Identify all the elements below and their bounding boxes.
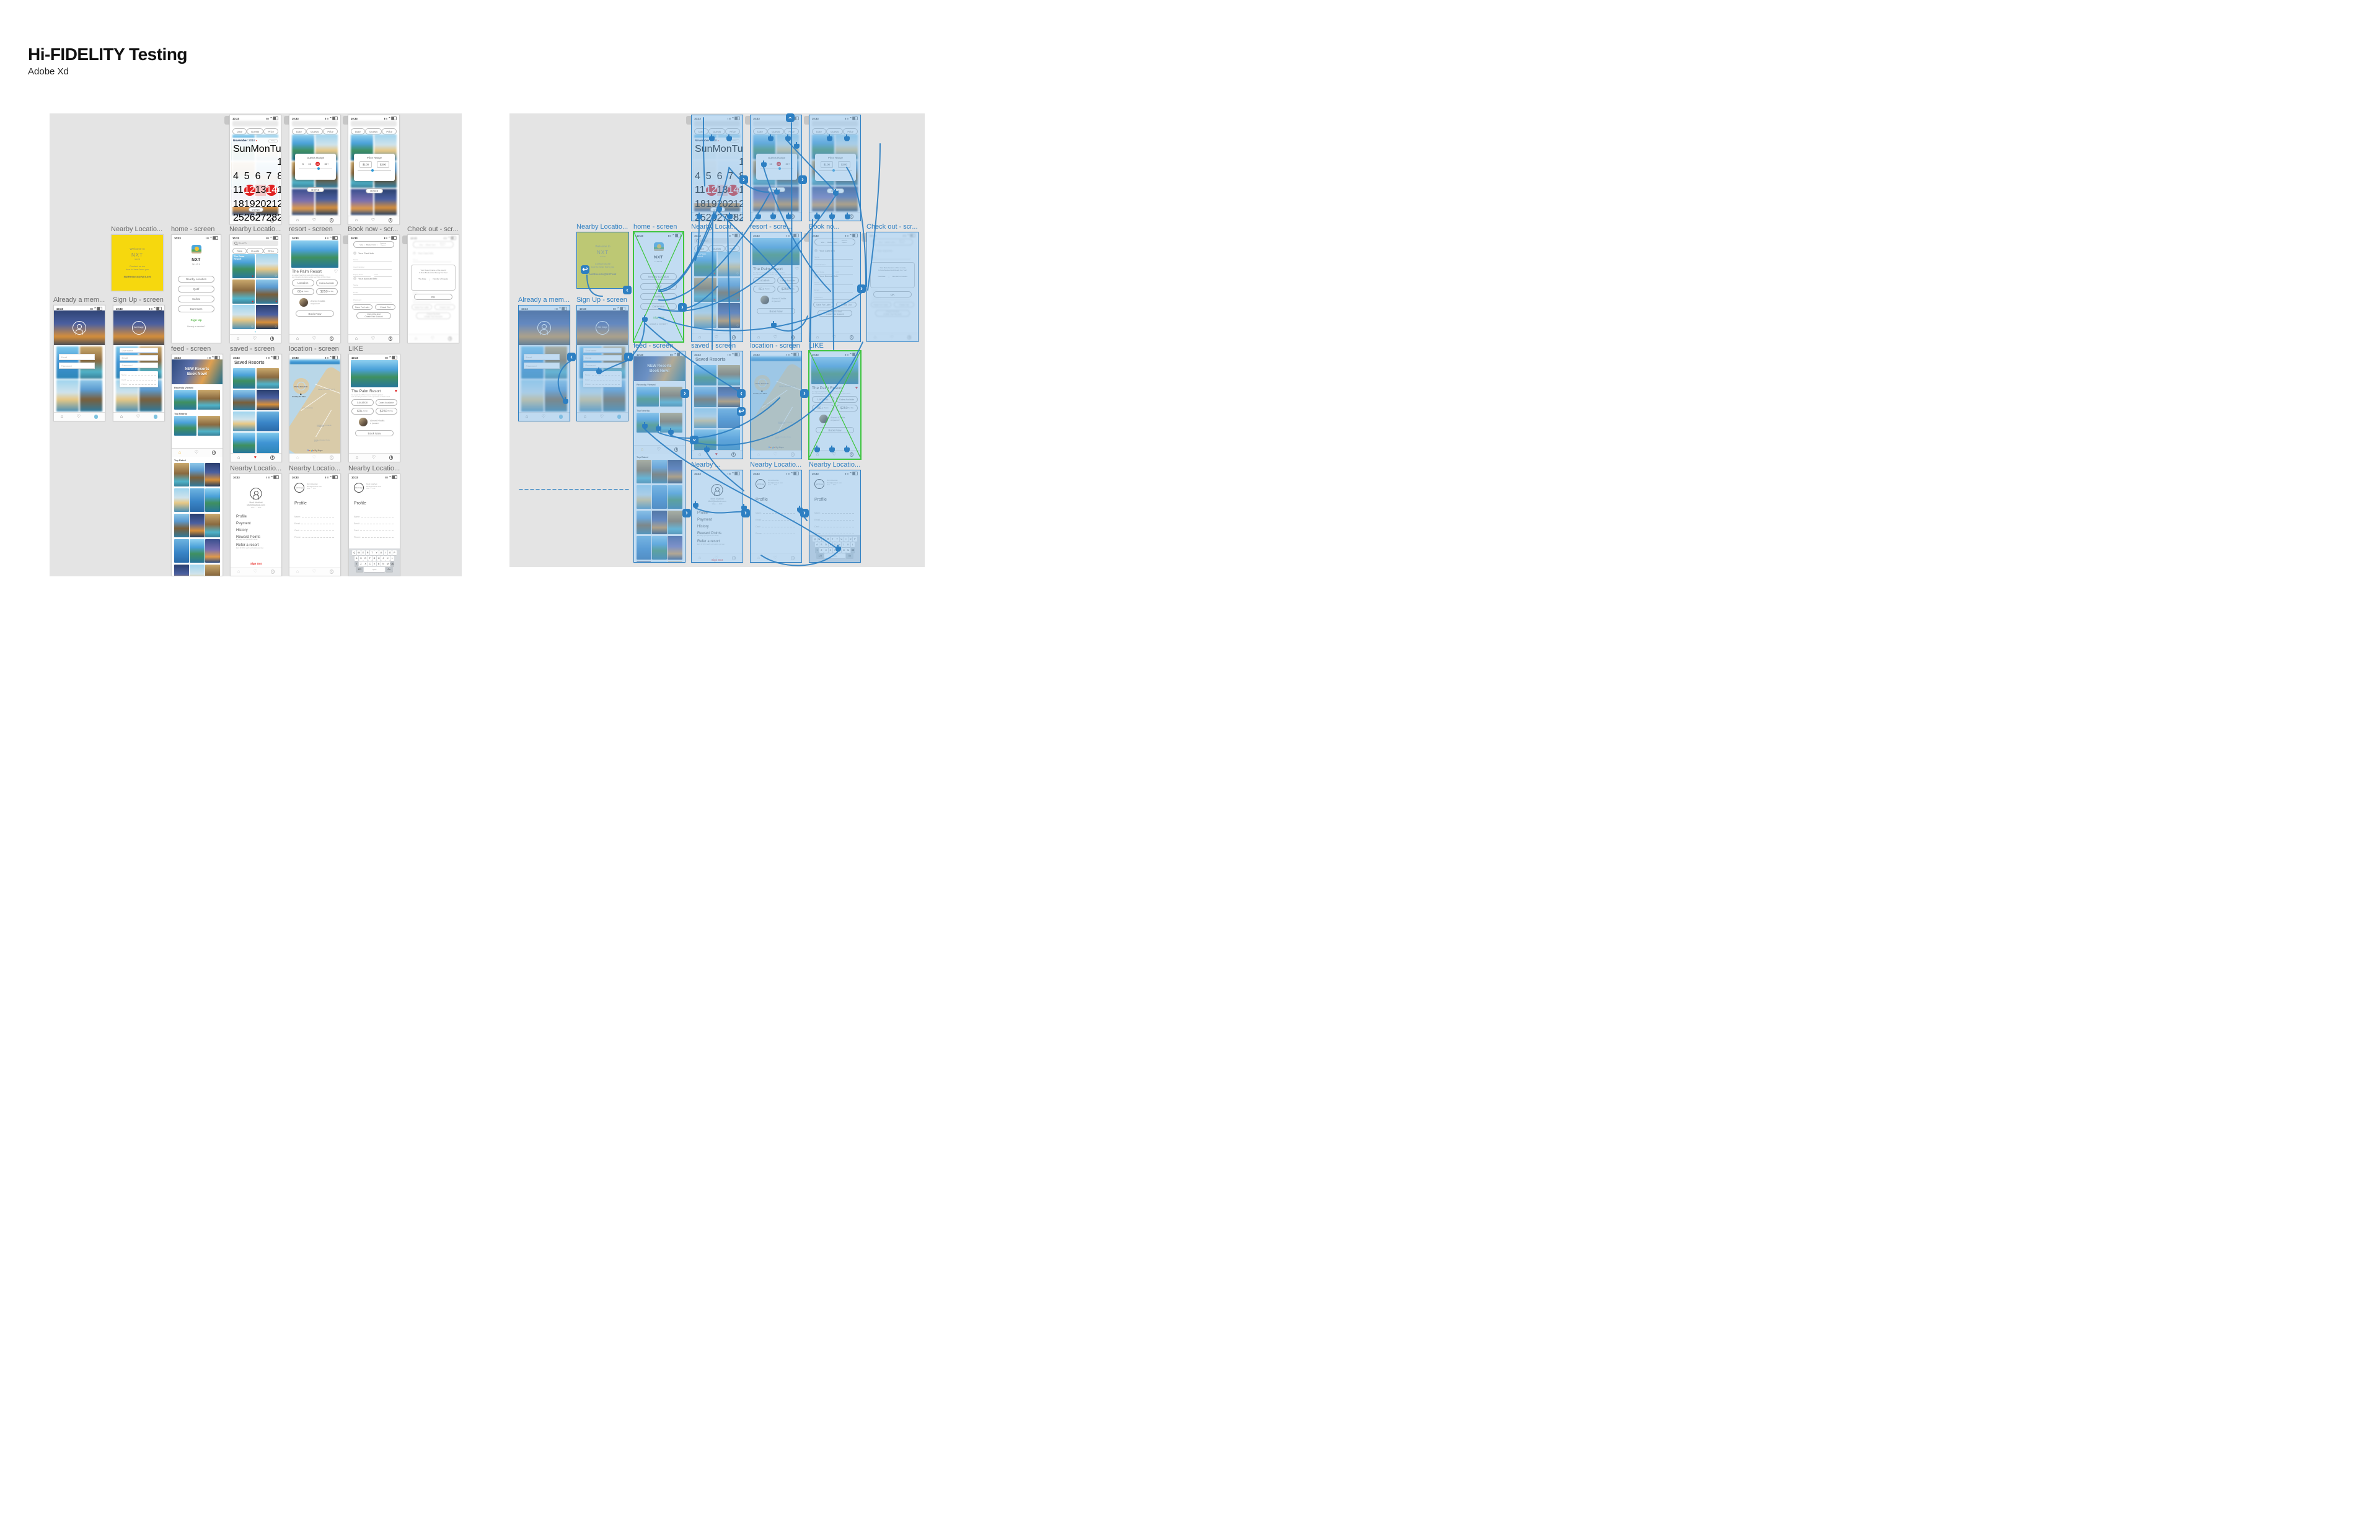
card-type-selector[interactable]: Visa|Master Card|American Express [872,239,913,245]
artboard-profile[interactable]: 10:33Add ImageMurti AlsaihatiMurti@outlo… [750,470,802,563]
artboard-profile_keyboard[interactable]: 10:33Add ImageMurti AlsaihatiMurti@outlo… [348,473,400,576]
field-name[interactable]: Name [814,281,853,285]
calendar-day[interactable]: 1 [739,157,743,168]
location-chip[interactable]: Location [753,277,775,284]
calendar-day[interactable]: 21 [728,199,739,210]
key-C[interactable]: C [829,548,832,553]
field-name[interactable]: Name [353,258,392,262]
explore-icon[interactable] [907,335,912,340]
artboard-filter_guests[interactable]: 10:33DateGuestsPriceGuests Range5153030+… [289,115,341,225]
calendar-day[interactable]: 1 [277,157,281,168]
card-type-master-card[interactable]: Master Card [426,244,436,246]
home-icon[interactable]: ⌂ [237,337,239,341]
chip-guests[interactable]: Guests [767,128,784,134]
home-icon[interactable]: ⌂ [296,570,299,574]
calendar-day[interactable]: 4 [233,171,244,182]
home-icon[interactable]: ⌂ [178,451,181,455]
city-button-nearby-location[interactable]: Nearby Location [640,273,677,280]
artboard-label[interactable]: Already a mem... [53,296,105,304]
explore-icon[interactable] [330,455,334,460]
connector-plug[interactable] [829,447,835,452]
calendar-day[interactable]: 15 [739,185,743,196]
connector-plug[interactable] [814,214,820,219]
heart-icon[interactable]: ♡ [136,415,140,419]
heart-filled-icon[interactable]: ♥ [855,386,858,390]
calendar-day[interactable]: 4 [695,171,706,182]
explore-icon[interactable] [389,337,393,341]
ok-button[interactable]: OK [414,294,452,300]
connector-plug[interactable] [693,503,699,508]
explore-icon[interactable] [791,452,795,457]
home-icon[interactable]: ⌂ [120,415,123,419]
card-type-master-card[interactable]: Master Card [885,241,895,244]
connector-chevron-icon[interactable]: › [800,389,809,398]
artboard-checkout[interactable]: 10:33Visa|Master Card|American Express1Y… [407,234,459,343]
guests-chip[interactable]: 60+Person [812,405,834,411]
field-email[interactable]: Email [814,289,853,293]
check-out-button[interactable]: Check Out [836,302,857,307]
artboard-signin[interactable]: 10:33EmailPassword⌂♡ [53,305,105,421]
question-link[interactable]: ✉ Question? [772,301,786,302]
heart-icon[interactable]: ♡ [773,335,777,340]
map-area[interactable]: Palm Jumeirah◆One&Only The PalmsDUBAI IN… [289,364,340,454]
slider-handle[interactable] [371,169,374,172]
connector-plug[interactable] [844,447,850,452]
today-button[interactable]: ‹ Today › [268,139,278,143]
calendar-day[interactable]: 11 [233,185,244,196]
card-type-master-card[interactable]: Master Card [366,244,376,246]
calendar-day[interactable]: 12 [706,185,717,196]
artboard-map[interactable]: 10:33Palm Jumeirah◆One&Only The PalmsDUB… [750,351,802,459]
home-icon[interactable]: ⌂ [699,556,701,560]
key-T[interactable]: T [370,550,374,555]
book-now-button[interactable]: Book Now [355,430,394,436]
question-link[interactable]: ✉ Question? [831,420,845,421]
city-button-saihat[interactable]: Saihat [640,293,677,300]
city-button-saihat[interactable]: Saihat [178,296,214,302]
home-icon[interactable]: ⌂ [415,337,417,341]
heart-icon[interactable]: ♡ [773,556,777,560]
key-F[interactable]: F [368,556,372,561]
artboard-signup[interactable]: 10:33Add ImageUsernameEmailPasswordName:… [576,305,628,421]
field-password[interactable]: Password [583,363,622,368]
home-icon[interactable]: ⌂ [237,455,240,460]
home-icon[interactable]: ⌂ [757,556,760,560]
calendar-day[interactable]: 6 [717,171,728,182]
field-email[interactable]: Email [524,354,560,360]
menu-item-history[interactable]: History [236,529,278,532]
connector-chevron-icon[interactable]: › [739,175,748,184]
book-now-button[interactable]: Book Now [816,427,854,433]
question-link[interactable]: ✉ Question? [311,303,325,305]
connector-plug[interactable] [596,369,602,374]
calendar-day[interactable]: 27 [717,213,728,221]
explore-icon[interactable] [330,337,334,341]
check-out-button[interactable]: Check Out [375,304,395,310]
artboard-label[interactable]: Sign Up - screen [576,296,627,304]
price-min[interactable]: $100 [359,161,372,168]
artboard-label[interactable]: LIKE [348,345,363,353]
calendar-day[interactable]: 11 [695,185,706,196]
artboard-label[interactable]: Nearby Locatio... [809,461,860,469]
artboard-welcome[interactable]: Welcome toNXTresortsContact us we love t… [576,232,629,289]
key-L[interactable]: L [851,542,855,547]
artboard-label[interactable]: Nearby Locat... [691,223,738,231]
signup-link[interactable]: Sign Up [634,317,683,320]
artboard-home[interactable]: 10:33NXTresortsNearby LocationQatifSaiha… [633,232,684,342]
calendar-day[interactable]: 8 [277,171,281,182]
heart-icon[interactable]: ♥ [715,452,718,457]
chip-guests[interactable]: Guests [708,128,725,134]
heart-icon[interactable]: ♡ [542,415,545,419]
connector-chevron-icon[interactable]: › [737,389,746,398]
search-bar[interactable] [812,121,858,126]
key-⇧[interactable]: ⇧ [815,548,819,553]
key-⌫[interactable]: ⌫ [390,561,394,566]
key-R[interactable]: R [826,537,830,542]
explore-icon[interactable] [791,335,795,340]
card-type-american-express[interactable]: American Express [898,240,907,244]
artboard-label[interactable]: Check out - scr... [407,226,459,233]
card-type-selector[interactable]: Visa|Master Card|American Express [353,241,394,248]
home-icon[interactable]: ⌂ [296,218,299,222]
field-name[interactable]: Name [814,256,853,260]
heart-filled-icon[interactable]: ♥ [713,299,715,302]
heart-icon[interactable]: ♡ [657,447,661,452]
field-card-number[interactable]: Card Number [814,263,853,267]
connector-plug[interactable] [741,506,747,511]
artboard-checkout[interactable]: 10:33Visa|Master Card|American Express1Y… [866,232,919,342]
search-bar[interactable] [694,121,740,126]
heart-icon[interactable]: ♡ [371,337,375,341]
field-username[interactable]: Username [120,348,158,353]
connector-chevron-icon[interactable]: › [624,353,633,361]
field-username[interactable]: Username [583,348,622,353]
key-⌫[interactable]: ⌫ [851,548,855,553]
guests-chip[interactable]: 60+Person [753,286,775,293]
connector-plug[interactable] [756,214,761,219]
field-email[interactable]: Email [583,355,622,361]
card-type-american-express[interactable]: American Express [379,243,388,246]
explore-icon[interactable] [791,214,795,219]
chip-guests[interactable]: Guests [306,128,323,134]
artboard-label[interactable]: Already a mem... [518,296,570,304]
chip-price[interactable]: Price [323,128,338,134]
key-X[interactable]: X [363,561,367,566]
connector-plug[interactable] [835,547,841,552]
calendar-day[interactable]: 21 [266,199,277,210]
keyboard[interactable]: QWERTYUIOPASDFGHJKL⇧ZXCVBNM⌫123spaceGo [349,548,400,576]
connector-chevron-icon[interactable]: ↩ [737,407,746,416]
chip-price[interactable]: Price [382,128,397,134]
artboard-saved[interactable]: 10:33Saved Resorts⌂♥ [230,354,282,462]
artboard-filter_calendar[interactable]: 10:33DateGuestsPriceNovember2018▸‹ Today… [691,115,743,221]
key-X[interactable]: X [824,548,827,553]
save-for-later-button[interactable]: Save For Later [352,304,372,310]
artboard-label[interactable]: resort - scre... [750,223,792,231]
home-icon[interactable]: ⌂ [757,335,760,340]
connector-chevron-icon[interactable]: › [682,509,691,517]
explore-icon[interactable] [731,452,736,457]
explore-icon[interactable] [389,455,394,460]
book-now-button[interactable]: Book Now [296,310,334,317]
heart-outline-icon[interactable]: ♡ [275,275,277,278]
key-R[interactable]: R [366,550,369,555]
chip-price[interactable]: Price [784,128,799,134]
home-icon[interactable]: ⌂ [355,337,358,341]
slider-handle[interactable] [778,167,781,170]
heart-icon[interactable]: ♡ [195,451,198,455]
key-S[interactable]: S [359,556,363,561]
artboard-label[interactable]: feed - screen [171,345,211,353]
key-W[interactable]: W [357,550,361,555]
artboard-home[interactable]: 10:33NXTresortsNearby LocationQatifSaiha… [171,234,221,343]
artboard-resort_detail_liked[interactable]: 10:33The Palm Resort♥An elegant beachfro… [348,354,400,462]
calendar-day[interactable]: 14 [266,185,277,196]
calendar-day[interactable]: 22 [277,199,281,210]
heart-icon[interactable]: ♡ [431,337,434,341]
key-J[interactable]: J [842,542,845,547]
key-⇧[interactable]: ⇧ [355,561,358,566]
menu-item-payment[interactable]: Payment [236,522,278,526]
home-icon[interactable]: ⌂ [874,335,876,340]
artboard-resort_detail_liked[interactable]: 10:33The Palm Resort♥An elegant beachfro… [809,351,861,459]
book-now-button[interactable]: Book Now [757,308,795,314]
home-icon[interactable]: ⌂ [526,415,528,419]
heart-icon[interactable]: ♡ [312,455,316,460]
connector-plug[interactable] [774,190,780,195]
field-email[interactable]: Email [59,354,95,360]
field-name[interactable]: Name [353,284,392,288]
chip-date[interactable]: Date [812,128,826,134]
artboard-feed[interactable]: 10:33NEW Resorts Book Now!Recently Viewe… [171,354,223,576]
connector-plug[interactable] [829,214,835,219]
chip-date[interactable]: Date [694,128,708,134]
search-bar[interactable] [351,121,397,126]
artboard-filter_calendar[interactable]: 10:33DateGuestsPriceNovember2018▸‹ Today… [229,115,281,225]
explore-icon[interactable] [271,570,275,574]
connector-plug[interactable] [794,144,800,149]
connector-plug[interactable] [845,214,850,219]
artboard-resort_list[interactable]: 10:33SearchDateGuestsPriceThe Palm Resor… [691,232,743,342]
heart-outline-icon[interactable]: ♡ [334,270,338,274]
artboard-label[interactable]: Nearby Locatio... [111,226,162,233]
menu-item-profile[interactable]: Profile [697,511,739,515]
calendar-day[interactable]: 29 [277,213,281,224]
chip-price[interactable]: Price [263,128,278,134]
chip-price[interactable]: Price [725,245,740,252]
signup-link[interactable]: Sign Up [172,319,221,322]
price-chip[interactable]: $250Per Day [376,408,398,415]
search-bar[interactable] [232,121,278,126]
dates-chip[interactable]: Dates Available [836,396,858,403]
heart-outline-icon[interactable]: ♡ [275,326,277,329]
guests-chip[interactable]: 60+Person [351,408,374,415]
connector-plug[interactable] [771,323,777,328]
add-image-circle[interactable]: Add Image [132,321,146,335]
card-type-visa[interactable]: Visa [821,241,824,244]
key-W[interactable]: W [818,537,821,542]
connector-plug[interactable] [697,214,702,219]
connector-plug[interactable] [726,136,732,141]
connector-plug[interactable] [768,136,773,141]
explore-icon[interactable] [389,218,393,222]
explore-icon[interactable] [850,335,854,340]
key-N[interactable]: N [842,548,845,553]
key-F[interactable]: F [829,542,832,547]
chip-price[interactable]: Price [263,248,278,254]
connector-plug[interactable] [709,136,715,141]
artboard-label[interactable]: Nearby Locatio... [576,223,628,231]
connector-plug[interactable] [814,447,820,452]
add-image-circle[interactable]: Add Image [596,321,609,335]
connector-plug[interactable] [761,162,767,167]
connector-plug[interactable] [704,447,710,452]
home-icon[interactable]: ⌂ [757,452,760,457]
artboard-resort_detail[interactable]: 10:33The Palm Resort♡An elegant beachfro… [289,234,341,343]
artboard-profile[interactable]: 10:33Add ImageMurti AlsaihatiMurti@outlo… [289,473,341,576]
explore-icon[interactable] [330,570,334,574]
key-T[interactable]: T [831,537,834,542]
calendar-day[interactable]: 22 [739,199,743,210]
calendar-day[interactable]: 5 [244,171,255,182]
calendar-next-icon[interactable]: ▸ [256,139,257,142]
artboard-label[interactable]: saved - screen [691,342,736,350]
key-Q[interactable]: Q [352,550,356,555]
price-min[interactable]: $100 [821,161,833,168]
explore-icon[interactable] [212,451,216,455]
price-max[interactable]: $300 [838,161,850,168]
menu-item-history[interactable]: History [697,525,739,529]
dates-chip[interactable]: Dates Available [316,279,338,286]
key-A[interactable]: A [355,556,358,561]
connector-plug[interactable] [642,424,648,429]
field-password[interactable]: Password [353,299,392,302]
artboard-label[interactable]: LIKE [809,342,824,350]
city-button-qatif[interactable]: Qatif [640,283,677,290]
calendar-day[interactable]: 26 [244,213,255,224]
checkout-create-button[interactable]: Check Out And Create Your Account [818,310,852,317]
home-icon[interactable]: ⌂ [699,335,701,340]
connector-plug[interactable] [827,136,832,141]
artboard-map[interactable]: 10:33Palm Jumeirah◆One&Only The PalmsDUB… [289,354,341,462]
connector-chevron-icon[interactable]: › [678,303,687,312]
calendar-day[interactable]: 7 [266,171,277,182]
heart-icon[interactable]: ♡ [715,556,718,560]
artboard-label[interactable]: Nearby Locatio... [230,465,281,472]
heart-outline-icon[interactable]: ♡ [713,325,715,328]
menu-item-refer-a-resort[interactable]: Refer a resort [236,543,278,547]
key-A[interactable]: A [815,542,819,547]
heart-icon[interactable]: ♡ [372,455,376,460]
artboard-saved[interactable]: 10:33Saved Resorts⌂♥ [691,351,743,459]
artboard-label[interactable]: Nearby Locatio... [289,465,340,472]
heart-icon[interactable]: ♡ [715,335,718,340]
profile-dot-icon[interactable] [94,415,99,419]
slider-handle[interactable] [832,169,835,172]
explore-icon[interactable] [732,556,736,560]
heart-icon[interactable]: ♡ [773,452,777,457]
connector-chevron-icon[interactable]: › [681,389,689,398]
key-U[interactable]: U [379,550,383,555]
key-Z[interactable]: Z [359,561,363,566]
artboard-resort_list[interactable]: 10:33SearchDateGuestsPriceThe Palm Resor… [229,234,281,343]
calendar-day[interactable]: 13 [717,185,728,196]
connector-plug[interactable] [727,214,733,219]
guest-option[interactable]: 30 [315,162,320,166]
artboard-filter_guests[interactable]: 10:33DateGuestsPriceGuests Range5153030+… [750,115,802,221]
guest-option[interactable]: 5 [302,162,304,165]
calendar-next-icon[interactable]: ▸ [718,139,719,142]
key-space[interactable]: space [824,553,845,558]
heart-filled-icon[interactable]: ♥ [713,273,715,276]
chip-date[interactable]: Date [232,248,247,254]
field-password[interactable]: Password [59,363,95,369]
calendar-day[interactable]: 13 [255,185,267,196]
artboard-feed[interactable]: 10:33NEW Resorts Book Now!Recently Viewe… [633,351,685,563]
chip-price[interactable]: Price [843,128,858,134]
artboard-label[interactable]: location - screen [750,342,800,350]
artboard-label[interactable]: home - screen [633,223,677,231]
artboard-label[interactable]: Nearby ... [691,461,721,469]
explore-icon[interactable] [850,452,854,457]
artboard-label[interactable]: resort - screen [289,226,333,233]
connector-chevron-icon[interactable]: › [690,436,699,444]
artboard-label[interactable]: Nearby Locatio... [348,465,400,472]
key-O[interactable]: O [388,550,392,555]
connector-plug[interactable] [785,136,791,141]
question-link[interactable]: ✉ Question? [370,423,384,425]
save-for-later-button[interactable]: Save For Later [871,302,891,307]
field-name[interactable]: Name [872,256,910,260]
artboard-label[interactable]: Sign Up - screen [113,296,164,304]
heart-outline-icon[interactable]: ♡ [736,325,739,328]
connector-chevron-icon[interactable]: › [623,286,632,294]
add-image-circle[interactable]: Add Image [354,483,364,493]
save-for-later-button[interactable]: Save For Later [412,304,432,310]
artboard-signup[interactable]: 10:33Add ImageUsernameEmailPasswordName:… [113,305,165,421]
key-S[interactable]: S [819,542,823,547]
chip-guests[interactable]: Guests [247,248,263,254]
chip-date[interactable]: Date [232,128,247,134]
key-N[interactable]: N [381,561,385,566]
done-button[interactable]: DONE [249,207,263,212]
city-button-nearby-location[interactable]: Nearby Location [178,276,214,283]
key-123[interactable]: 123 [356,567,363,572]
done-button[interactable]: DONE [307,187,324,192]
chip-guests[interactable]: Guests [365,128,382,134]
heart-icon[interactable]: ♡ [832,452,836,457]
connector-plug[interactable] [844,136,850,141]
card-type-american-express[interactable]: American Express [840,240,849,244]
artboard-label[interactable]: saved - screen [230,345,275,353]
field-name[interactable]: Name [413,258,451,262]
artboard-label[interactable]: Nearby Locatio... [750,461,801,469]
artboard-account[interactable]: 10:33Murti AlsaihatiMurti@outlook.comVis… [230,473,282,576]
heart-filled-icon[interactable]: ♥ [275,301,277,304]
artboard-label[interactable]: Book no... [809,223,840,231]
connector-plug[interactable] [786,214,791,219]
home-icon[interactable]: ⌂ [356,455,358,460]
key-Y[interactable]: Y [374,550,378,555]
calendar-day[interactable]: 18 [233,199,244,210]
sign-out-button[interactable]: Sign Out [231,562,281,565]
chip-date[interactable]: Date [753,128,767,134]
home-icon[interactable]: ⌂ [641,447,643,452]
connector-chevron-icon[interactable]: › [567,353,576,361]
city-button-dammam[interactable]: Dammam [640,303,677,310]
key-L[interactable]: L [390,556,394,561]
